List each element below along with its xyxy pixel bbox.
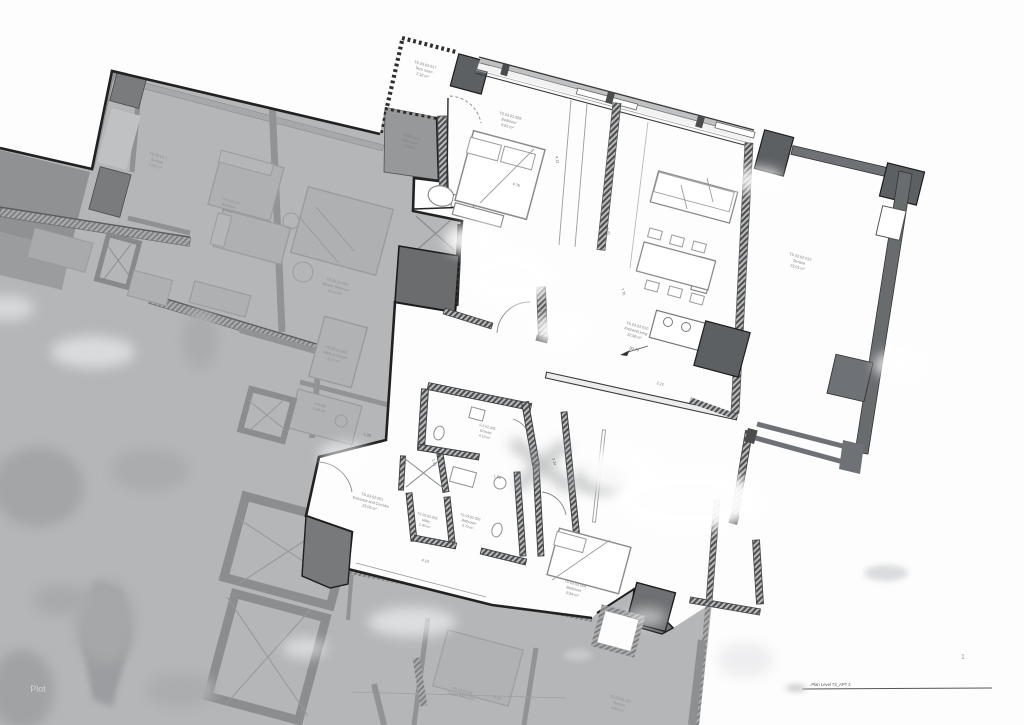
svg-text:Plot: Plot xyxy=(30,684,46,694)
svg-text:..Plan Level 73_APT 2: ..Plan Level 73_APT 2 xyxy=(809,682,851,687)
svg-text:1: 1 xyxy=(961,654,965,661)
